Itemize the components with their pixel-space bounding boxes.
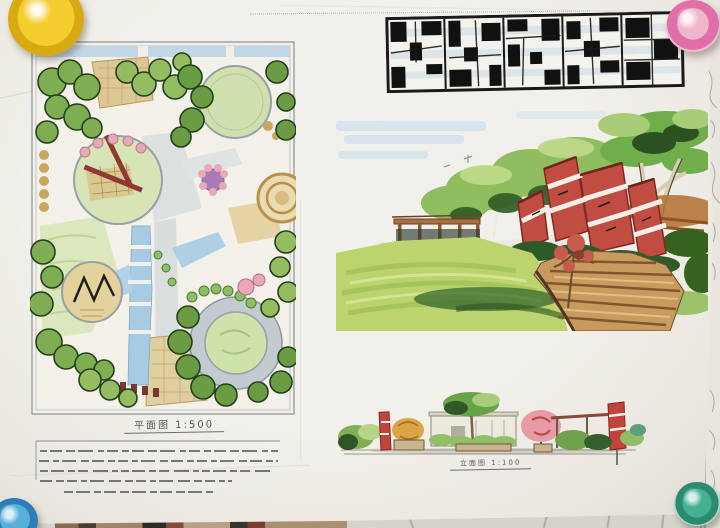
plan-figure-label: 平面图 1:500: [124, 415, 224, 434]
photo-of-design-board: 染边设计: [0, 0, 720, 528]
elevation-figure-label: 立面图 1:100: [450, 457, 532, 470]
presentation-board-paper: 染边设计: [0, 0, 720, 528]
plan-label-text: 平面图: [134, 420, 170, 432]
elevation-drawing: [336, 392, 646, 466]
site-plan-drawing: [30, 40, 296, 416]
elevation-scale-text: 1:100: [491, 458, 521, 467]
paper-crease: [300, 200, 302, 460]
plan-scale-text: 1:500: [175, 419, 214, 431]
handwritten-notes: [34, 436, 286, 498]
elevation-label-text: 立面图: [460, 459, 487, 467]
push-pin-pink: [666, 0, 720, 52]
title-calligraphy: [385, 11, 687, 95]
push-pin-green: [674, 482, 720, 526]
perspective-rendering: [336, 103, 708, 331]
